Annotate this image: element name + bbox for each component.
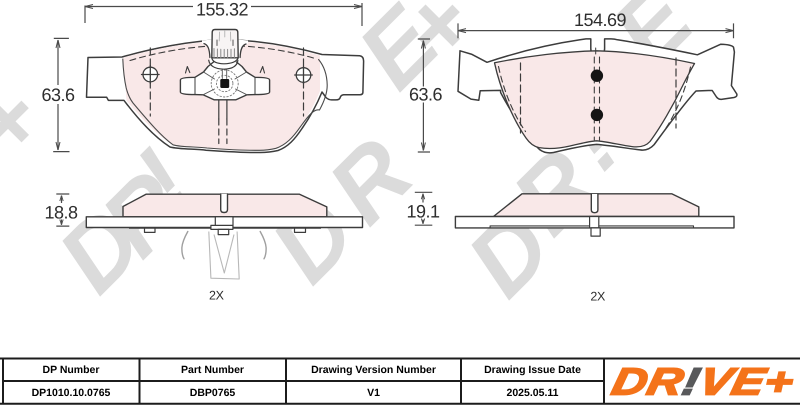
svg-text:63.6: 63.6: [409, 85, 443, 105]
svg-text:155.32: 155.32: [196, 0, 249, 20]
svg-text:154.69: 154.69: [574, 10, 627, 30]
svg-text:DP1010.10.0765: DP1010.10.0765: [32, 387, 111, 399]
svg-text:63.6: 63.6: [41, 85, 75, 105]
svg-text:19.1: 19.1: [406, 202, 440, 222]
svg-text:V1: V1: [367, 387, 380, 399]
svg-text:2X: 2X: [209, 289, 225, 303]
svg-text:DP Number: DP Number: [43, 364, 100, 376]
svg-text:DR!VE+: DR!VE+: [608, 362, 798, 404]
svg-text:Part Number: Part Number: [181, 364, 244, 376]
svg-text:Drawing Version Number: Drawing Version Number: [311, 364, 436, 376]
svg-text:DBP0765: DBP0765: [190, 387, 236, 399]
svg-text:2X: 2X: [590, 289, 606, 303]
svg-text:18.8: 18.8: [44, 203, 78, 223]
svg-text:2025.05.11: 2025.05.11: [507, 387, 559, 399]
svg-text:Drawing Issue Date: Drawing Issue Date: [484, 364, 581, 376]
